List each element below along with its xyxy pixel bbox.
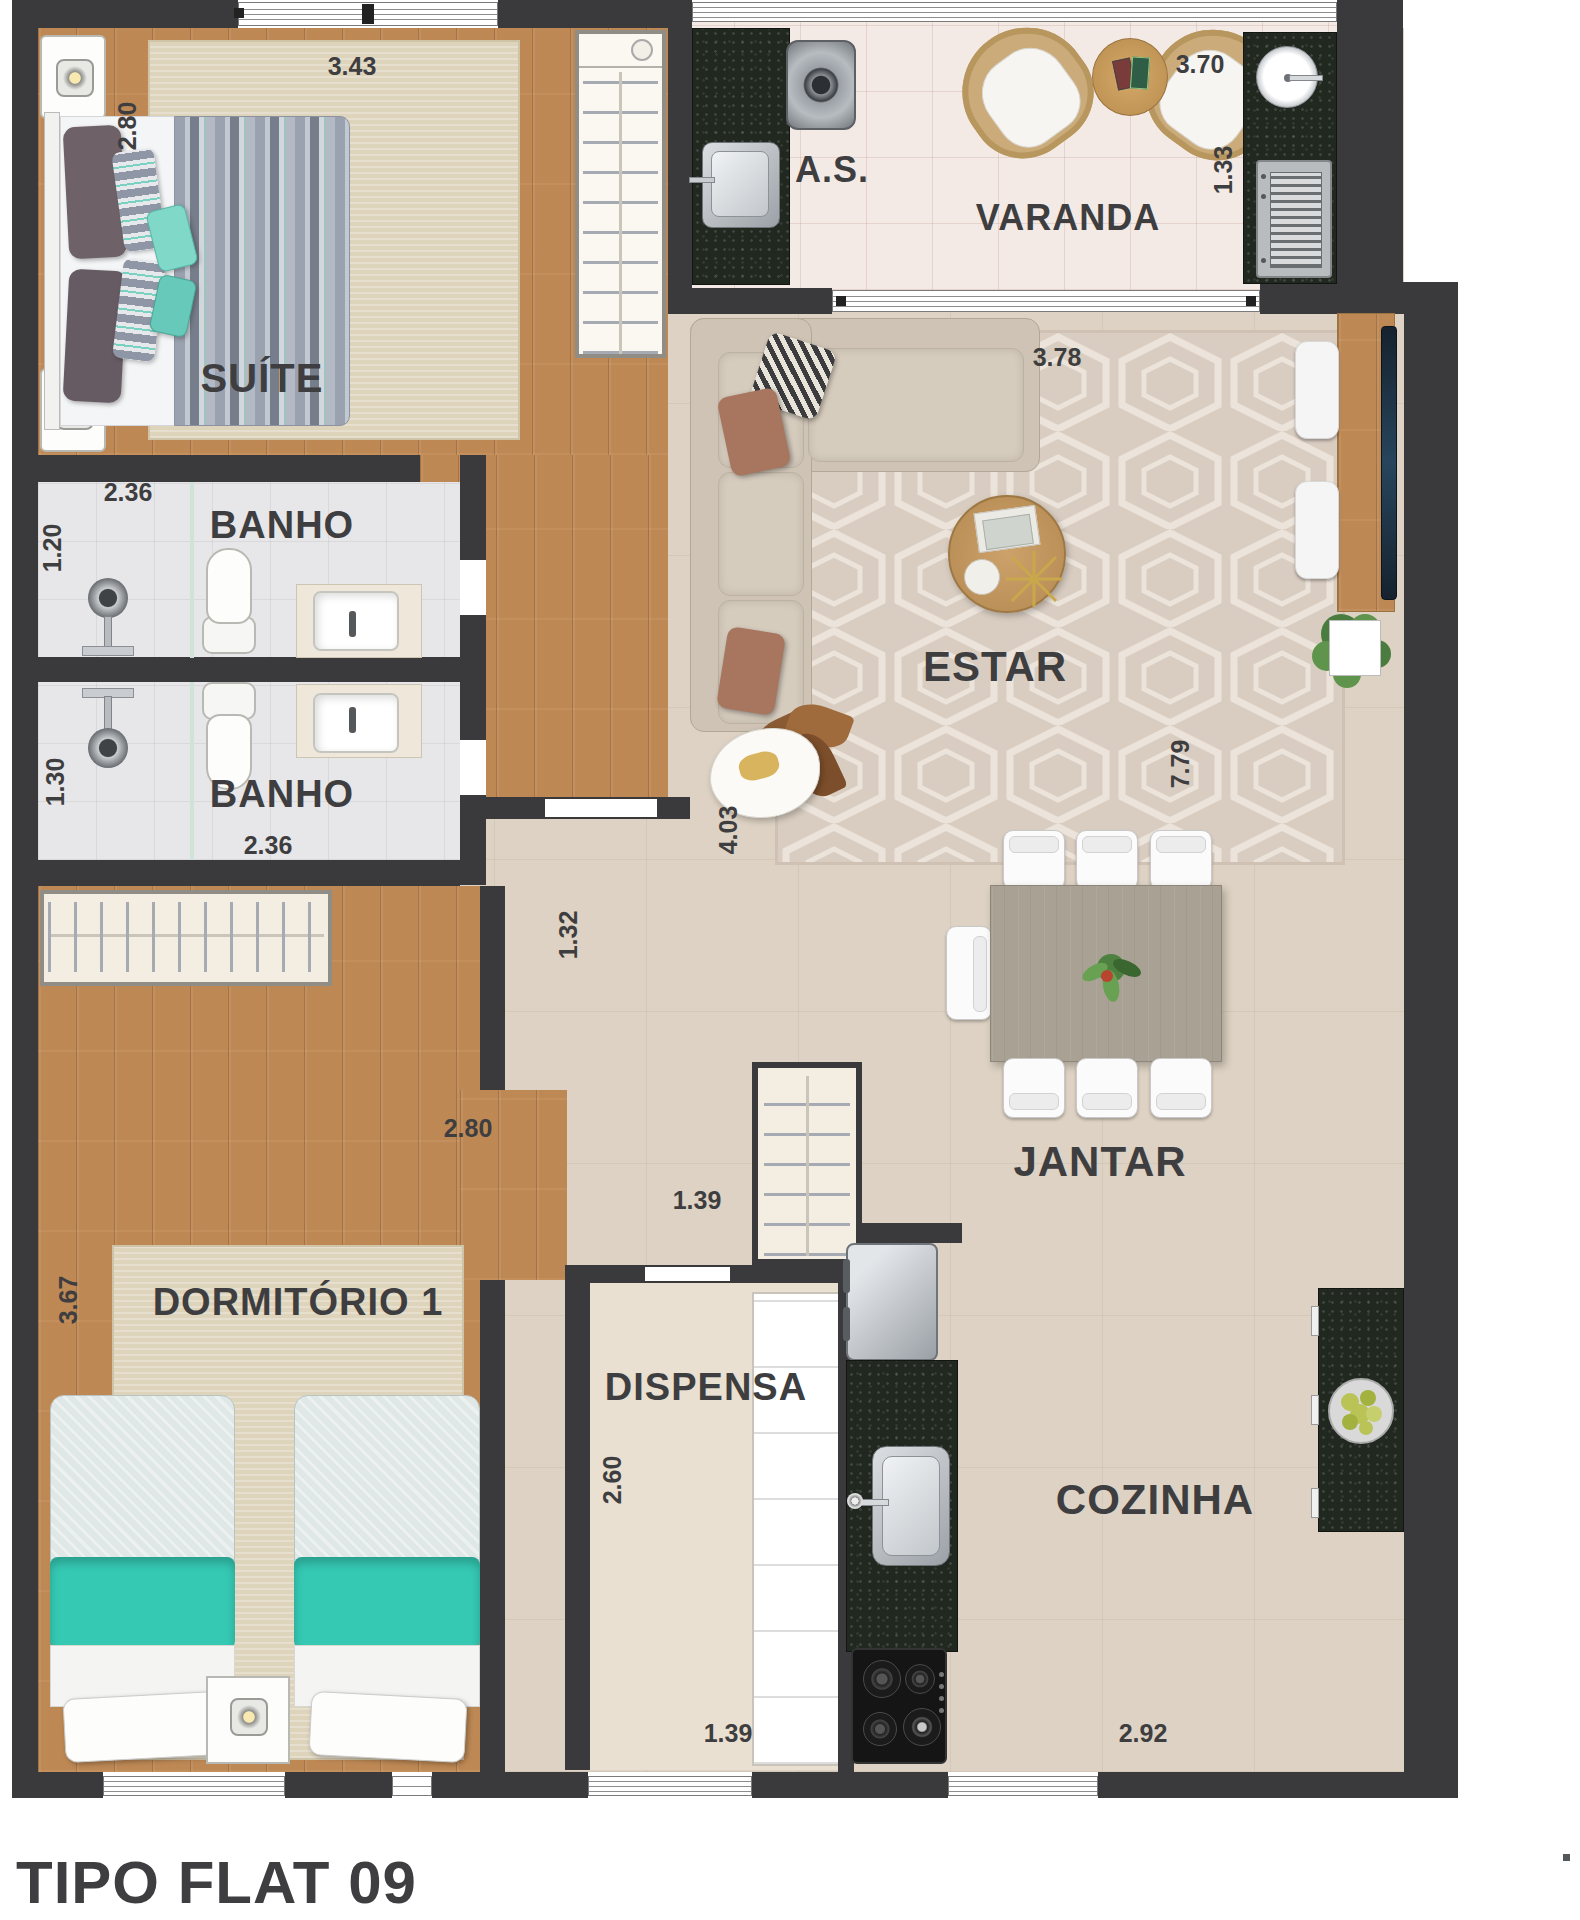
cozinha-window <box>948 1776 1098 1796</box>
dormitorio-dim-height: 3.67 <box>54 1276 83 1325</box>
varanda-dim-width: 3.70 <box>1176 50 1225 79</box>
dorm-bed-1-pillow <box>62 1691 221 1763</box>
wall-estar-topright <box>1260 282 1404 314</box>
dorm-bed-2-pillow <box>308 1691 467 1763</box>
dispensa-window <box>588 1776 752 1796</box>
dining-chair-top-3 <box>1150 830 1212 890</box>
estar-plant <box>1303 604 1399 692</box>
dining-chair-left <box>946 926 992 1020</box>
island-handle-2 <box>1311 1395 1319 1425</box>
dispensa-door <box>645 1267 730 1281</box>
window-mullion <box>362 4 374 24</box>
sliding-door-cap-left <box>836 296 846 306</box>
banho-social-door <box>460 740 486 795</box>
cozinha-dim-width: 2.92 <box>1119 1719 1168 1748</box>
gold-starburst <box>1004 549 1064 609</box>
floor-plan: SUÍTE 3.43 2.80 A.S. VARANDA 3.70 1.33 E… <box>0 0 1580 1920</box>
wall-suite-bottom <box>12 455 420 482</box>
banho-social-vanity <box>296 684 422 758</box>
wall-dispensa-left <box>565 1265 590 1770</box>
suite-dim-width: 3.43 <box>328 52 377 81</box>
wall-top-suite-right <box>498 0 692 28</box>
dining-chair-bottom-2 <box>1076 1058 1138 1118</box>
dorm-closet <box>40 890 332 986</box>
tank-faucet <box>689 177 715 183</box>
suite-nightstand-top <box>40 35 106 119</box>
dispensa-shelf-strip <box>752 1292 845 1766</box>
dining-chair-bottom-3 <box>1150 1058 1212 1118</box>
wall-dorm-right-bottom <box>480 1280 505 1772</box>
kitchen-sink <box>872 1446 950 1566</box>
banho-social-shower <box>60 688 150 784</box>
banho-suite-dim-height: 1.20 <box>38 524 67 573</box>
pouf-1 <box>1295 341 1339 439</box>
sofa-chaise-cushion <box>808 348 1024 462</box>
wall-bottom-5 <box>1098 1772 1458 1798</box>
varanda-glass-top <box>692 2 1337 22</box>
wall-banho-right <box>460 455 486 885</box>
banho-social-dim-width: 2.36 <box>244 831 293 860</box>
wall-estar-topleft <box>668 288 832 314</box>
dining-table <box>990 885 1222 1062</box>
banho-suite-shower <box>60 560 150 656</box>
island-handle-3 <box>1311 1488 1319 1518</box>
dispensa-label: DISPENSA <box>605 1366 807 1409</box>
banho-suite-glass <box>190 482 194 658</box>
suite-dim-height: 2.80 <box>113 102 142 151</box>
tv-screen <box>1381 326 1397 600</box>
dorm-nightstand <box>206 1676 290 1764</box>
estar-dim-length: 7.79 <box>1166 740 1195 789</box>
as-label: A.S. <box>795 149 869 191</box>
suite-wardrobe <box>575 30 666 358</box>
sliding-door-cap-right <box>1246 296 1256 306</box>
dorm-dim-entry: 2.80 <box>444 1114 493 1143</box>
dispensa-dim-height: 2.60 <box>598 1456 627 1505</box>
dorm-window <box>103 1776 285 1796</box>
cooktop <box>851 1648 947 1764</box>
dining-chair-top-2 <box>1076 830 1138 890</box>
corner-dot <box>1563 1854 1570 1861</box>
estar-label: ESTAR <box>923 643 1067 691</box>
banho-social-glass <box>190 682 194 860</box>
varanda-label: VARANDA <box>976 197 1160 239</box>
jantar-label: JANTAR <box>1013 1138 1186 1186</box>
suite-bed-headboard <box>44 112 60 430</box>
window-cap <box>234 8 244 18</box>
hall-dim-pass: 1.39 <box>673 1186 722 1215</box>
dining-chair-top-1 <box>1003 830 1065 890</box>
dining-chair-bottom-1 <box>1003 1058 1065 1118</box>
page-title: TIPO FLAT 09 <box>16 1848 417 1920</box>
sofa-cushion-2 <box>718 472 804 596</box>
wall-left <box>12 0 38 1798</box>
varanda-dim-height: 1.33 <box>1209 146 1238 195</box>
banho-suite-toilet <box>198 548 260 658</box>
wall-right <box>1404 282 1458 1798</box>
banho-social-dim-height: 1.30 <box>41 758 70 807</box>
varanda-round-sink <box>1256 46 1318 108</box>
banho-suite-door <box>460 560 486 615</box>
grill <box>1256 160 1332 278</box>
dorm-bed-2 <box>294 1395 480 1772</box>
estar-dim-side: 4.03 <box>714 806 743 855</box>
island-handles <box>1311 1306 1319 1336</box>
washing-machine <box>786 40 856 130</box>
estar-dim-width: 3.78 <box>1033 343 1082 372</box>
coffee-table <box>948 495 1066 613</box>
wall-dorm-top <box>12 860 460 886</box>
fruit-bowl <box>1328 1378 1394 1444</box>
corridor-door <box>545 799 657 817</box>
banho-suite-label: BANHO <box>210 504 354 547</box>
estar-sliding-door <box>832 290 1260 312</box>
banho-social-label: BANHO <box>210 773 354 816</box>
wall-as-left <box>668 28 692 290</box>
pouf-2 <box>1295 481 1339 579</box>
wall-bottom-3 <box>432 1772 588 1798</box>
small-window <box>392 1776 432 1796</box>
wall-varanda-right <box>1337 0 1403 290</box>
dispensa-dim-width: 1.39 <box>704 1719 753 1748</box>
sink-faucet <box>1289 75 1323 81</box>
coffee-table-tray <box>964 559 1000 595</box>
fridge <box>846 1243 938 1361</box>
dormitorio-label: DORMITÓRIO 1 <box>153 1281 444 1324</box>
hall-closet <box>752 1062 862 1265</box>
wall-bottom-4 <box>752 1772 948 1798</box>
wall-bottom-1 <box>12 1772 103 1798</box>
varanda-side-table <box>1092 38 1168 116</box>
wall-bottom-2 <box>285 1772 392 1798</box>
banho-suite-vanity <box>296 584 422 658</box>
suite-label: SUÍTE <box>201 356 324 401</box>
hall-dim-width: 1.32 <box>554 911 583 960</box>
table-centerpiece-plant <box>1077 938 1145 1010</box>
laundry-tank-sink <box>702 142 780 228</box>
wardrobe-hangers <box>583 72 658 354</box>
wall-top-suite-left <box>12 0 238 28</box>
wall-dorm-right-top <box>480 886 505 1090</box>
wall-banho-divider <box>12 657 460 682</box>
banho-suite-dim-width: 2.36 <box>104 478 153 507</box>
cozinha-label: COZINHA <box>1056 1476 1254 1524</box>
